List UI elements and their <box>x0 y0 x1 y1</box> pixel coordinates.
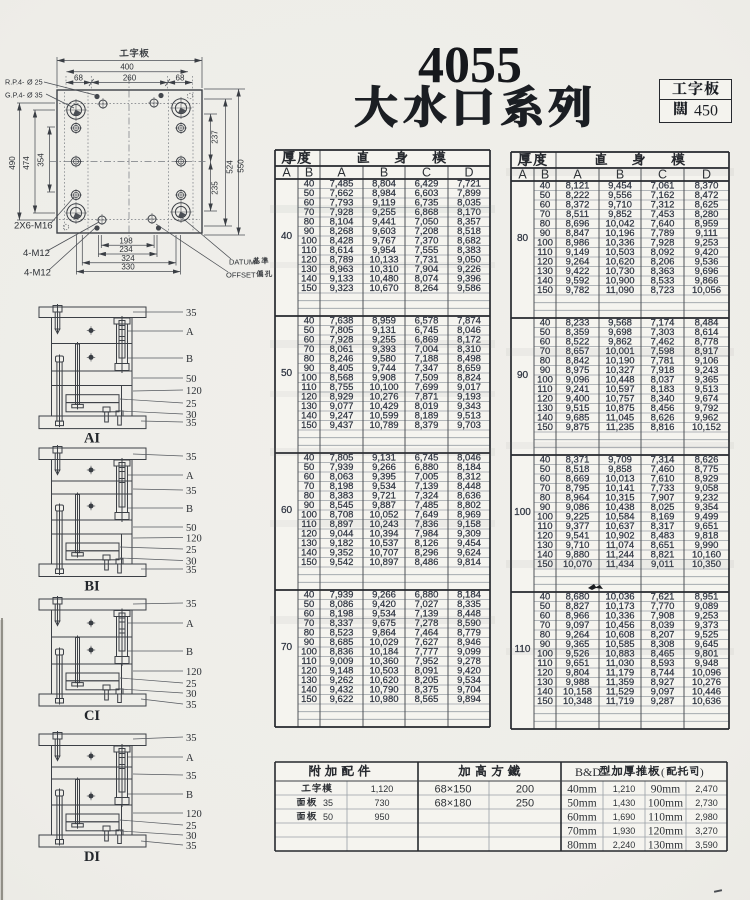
svg-text:130mm: 130mm <box>648 840 683 852</box>
svg-text:10,897: 10,897 <box>369 557 398 568</box>
svg-text:150: 150 <box>301 694 317 705</box>
svg-text:354: 354 <box>37 153 46 167</box>
svg-text:35: 35 <box>186 565 197 576</box>
svg-text:8,486: 8,486 <box>415 557 439 568</box>
svg-text:950: 950 <box>374 812 389 822</box>
svg-text:80mm: 80mm <box>567 840 596 852</box>
svg-text:68: 68 <box>176 73 185 82</box>
svg-text:150: 150 <box>537 422 553 433</box>
svg-text:8,379: 8,379 <box>415 420 439 431</box>
svg-text:(: ( <box>661 767 665 779</box>
svg-text:2,470: 2,470 <box>695 784 718 794</box>
svg-text:2X6-M16: 2X6-M16 <box>14 221 53 232</box>
svg-text:330: 330 <box>121 263 135 272</box>
svg-text:4-M12: 4-M12 <box>24 268 51 279</box>
svg-text:): ) <box>700 767 704 779</box>
svg-text:11,090: 11,090 <box>606 285 634 296</box>
svg-text:100mm: 100mm <box>648 798 683 810</box>
svg-text:50mm: 50mm <box>567 798 596 810</box>
svg-text:8,264: 8,264 <box>415 283 439 294</box>
svg-text:2,240: 2,240 <box>613 840 636 850</box>
svg-text:8,565: 8,565 <box>415 694 439 705</box>
svg-text:150: 150 <box>301 420 317 431</box>
svg-text:50: 50 <box>186 523 197 534</box>
svg-text:A: A <box>186 753 194 764</box>
svg-text:CI: CI <box>84 708 100 724</box>
svg-text:A: A <box>186 327 194 338</box>
svg-text:A: A <box>186 471 194 482</box>
svg-text:10,636: 10,636 <box>692 696 721 707</box>
svg-text:9,622: 9,622 <box>330 694 354 705</box>
svg-text:35: 35 <box>323 798 333 808</box>
svg-text:Ø 35: Ø 35 <box>27 91 43 100</box>
svg-text:11,719: 11,719 <box>606 696 634 707</box>
svg-text:8,816: 8,816 <box>651 422 675 433</box>
svg-text:10,152: 10,152 <box>692 422 721 433</box>
svg-text:550: 550 <box>237 159 246 173</box>
svg-text:50: 50 <box>186 374 197 385</box>
svg-text:150: 150 <box>301 283 317 294</box>
svg-text:110mm: 110mm <box>648 812 683 824</box>
svg-text:150: 150 <box>301 557 317 568</box>
svg-text:D: D <box>464 166 473 180</box>
svg-text:120: 120 <box>186 386 202 397</box>
svg-text:524: 524 <box>226 160 235 174</box>
svg-text:260: 260 <box>123 73 137 82</box>
svg-text:4-M12: 4-M12 <box>23 248 50 259</box>
svg-text:2,730: 2,730 <box>695 798 718 808</box>
svg-text:237: 237 <box>211 130 220 144</box>
svg-text:70mm: 70mm <box>567 826 596 838</box>
svg-text:68: 68 <box>74 73 83 82</box>
svg-text:R.P.4-: R.P.4- <box>5 78 25 87</box>
svg-text:50: 50 <box>323 812 333 822</box>
svg-text:150: 150 <box>537 285 553 296</box>
svg-text:B: B <box>305 166 313 180</box>
svg-text:A: A <box>186 619 194 630</box>
svg-text:3,590: 3,590 <box>695 840 718 850</box>
svg-text:11,235: 11,235 <box>606 422 634 433</box>
svg-text:1,210: 1,210 <box>613 784 636 794</box>
svg-text:1,430: 1,430 <box>613 798 636 808</box>
svg-text:1,690: 1,690 <box>613 812 636 822</box>
svg-text:40mm: 40mm <box>567 784 596 796</box>
svg-text:50: 50 <box>281 368 293 379</box>
svg-text:200: 200 <box>516 784 534 796</box>
svg-text:9,814: 9,814 <box>457 557 481 568</box>
svg-text:9,437: 9,437 <box>330 420 354 431</box>
svg-text:35: 35 <box>186 486 197 497</box>
svg-text:68×180: 68×180 <box>434 798 471 810</box>
svg-text:OFFSET: OFFSET <box>226 271 256 280</box>
svg-text:250: 250 <box>516 798 534 810</box>
svg-text:Ø 25: Ø 25 <box>27 78 43 87</box>
svg-text:3,270: 3,270 <box>695 826 718 836</box>
svg-text:8,723: 8,723 <box>651 285 675 296</box>
svg-text:B: B <box>186 790 193 801</box>
svg-text:10,789: 10,789 <box>369 420 398 431</box>
svg-text:9,287: 9,287 <box>651 696 675 707</box>
svg-text:25: 25 <box>186 399 197 410</box>
svg-text:68×150: 68×150 <box>434 784 471 796</box>
svg-text:A: A <box>282 166 291 180</box>
svg-text:9,542: 9,542 <box>330 557 354 568</box>
svg-text:730: 730 <box>374 798 389 808</box>
svg-text:25: 25 <box>186 545 197 556</box>
svg-text:DATUM: DATUM <box>229 258 255 267</box>
svg-text:120: 120 <box>186 809 202 820</box>
svg-text:90mm: 90mm <box>651 784 680 796</box>
svg-text:10,056: 10,056 <box>692 285 721 296</box>
svg-text:B&D: B&D <box>575 765 601 779</box>
svg-text:40: 40 <box>281 231 293 242</box>
svg-text:35: 35 <box>186 418 197 429</box>
svg-text:9,323: 9,323 <box>330 283 354 294</box>
svg-text:9,782: 9,782 <box>566 285 590 296</box>
svg-text:B: B <box>186 647 193 658</box>
svg-text:234: 234 <box>119 245 133 254</box>
svg-text:100: 100 <box>514 507 531 518</box>
svg-text:C: C <box>422 166 431 180</box>
svg-text:35: 35 <box>186 452 197 463</box>
svg-text:10,980: 10,980 <box>369 694 398 705</box>
svg-text:9,586: 9,586 <box>457 283 481 294</box>
svg-text:G.P.4-: G.P.4- <box>5 91 25 100</box>
svg-text:DI: DI <box>84 849 100 865</box>
svg-text:35: 35 <box>186 308 197 319</box>
svg-text:35: 35 <box>186 771 197 782</box>
svg-text:60: 60 <box>281 505 293 516</box>
svg-text:80: 80 <box>517 233 529 244</box>
svg-text:10,348: 10,348 <box>563 696 592 707</box>
svg-text:35: 35 <box>186 599 197 610</box>
svg-text:490: 490 <box>8 156 17 170</box>
svg-text:120: 120 <box>186 667 202 678</box>
svg-text:B: B <box>380 166 388 180</box>
svg-text:A: A <box>337 166 346 180</box>
svg-text:120mm: 120mm <box>648 826 683 838</box>
svg-text:474: 474 <box>22 156 31 170</box>
svg-text:90: 90 <box>517 370 529 381</box>
svg-text:324: 324 <box>121 254 135 263</box>
svg-text:2,980: 2,980 <box>695 812 718 822</box>
svg-text:120: 120 <box>186 534 202 545</box>
svg-text:9,894: 9,894 <box>457 694 481 705</box>
svg-text:198: 198 <box>119 236 133 245</box>
svg-text:1,930: 1,930 <box>613 826 636 836</box>
svg-text:150: 150 <box>537 696 553 707</box>
svg-text:30: 30 <box>186 689 197 700</box>
svg-text:9,875: 9,875 <box>566 422 590 433</box>
svg-text:60mm: 60mm <box>567 812 596 824</box>
svg-text:70: 70 <box>281 642 293 653</box>
svg-text:35: 35 <box>186 700 197 711</box>
svg-text:B: B <box>186 354 193 365</box>
svg-text:235: 235 <box>211 181 220 195</box>
svg-text:35: 35 <box>186 841 197 852</box>
svg-text:B: B <box>186 504 193 515</box>
svg-text:400: 400 <box>120 63 134 72</box>
svg-text:35: 35 <box>186 733 197 744</box>
svg-text:10,670: 10,670 <box>369 283 398 294</box>
svg-text:9,703: 9,703 <box>457 420 481 431</box>
svg-text:1,120: 1,120 <box>371 784 394 794</box>
